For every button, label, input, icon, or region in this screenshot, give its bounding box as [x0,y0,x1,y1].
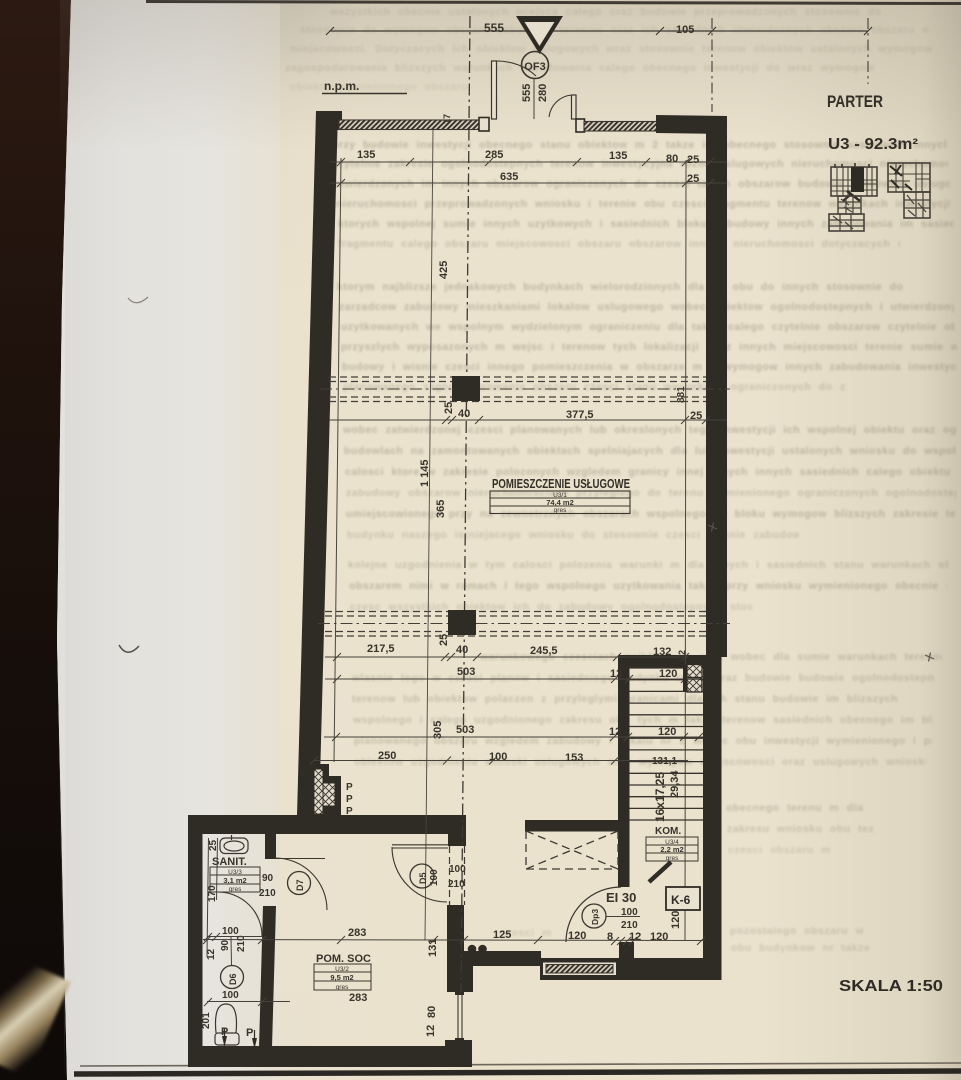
svg-text:555: 555 [521,84,533,102]
svg-text:D7: D7 [295,879,305,891]
svg-text:131: 131 [427,939,439,957]
svg-text:3,1 m2: 3,1 m2 [223,876,246,885]
svg-text:90: 90 [220,939,231,951]
svg-text:881: 881 [676,386,687,403]
svg-text:gres: gres [554,507,567,514]
svg-text:12: 12 [425,1025,437,1037]
svg-text:16x17,25: 16x17,25 [653,772,667,822]
svg-text:100: 100 [489,751,507,763]
svg-text:120: 120 [568,930,586,942]
svg-text:153: 153 [565,752,583,764]
svg-text:305: 305 [432,721,444,739]
svg-text:80: 80 [666,153,678,165]
svg-text:217,5: 217,5 [367,643,395,655]
svg-text:P: P [346,794,353,805]
svg-text:2,2 m2: 2,2 m2 [660,845,683,854]
svg-text:74,4 m2: 74,4 m2 [546,498,574,507]
svg-text:U3/2: U3/2 [335,966,349,973]
svg-text:210: 210 [236,935,247,952]
svg-text:D6: D6 [228,973,238,985]
svg-text:U3 - 92.3m²: U3 - 92.3m² [828,136,918,153]
svg-text:8: 8 [607,931,613,943]
svg-text:135: 135 [609,150,627,162]
svg-text:25: 25 [438,634,450,646]
svg-text:377,5: 377,5 [566,409,594,421]
svg-text:n.p.m.: n.p.m. [324,79,359,93]
svg-text:245,5: 245,5 [530,645,558,657]
svg-text:365: 365 [435,500,447,518]
svg-text:KOM.: KOM. [655,826,681,837]
svg-text:12: 12 [610,668,622,680]
svg-text:120: 120 [659,668,677,680]
svg-text:OF3: OF3 [524,61,545,73]
svg-text:29,34: 29,34 [669,770,681,798]
svg-text:POM. SOC: POM. SOC [316,953,371,965]
svg-text:gres: gres [229,886,242,893]
svg-text:425: 425 [438,261,450,279]
svg-text:280: 280 [537,84,549,102]
svg-text:gres: gres [336,984,349,991]
svg-text:100: 100 [449,864,466,875]
svg-text:9,5 m2: 9,5 m2 [330,973,353,982]
svg-text:17: 17 [442,114,452,124]
svg-text:K-6: K-6 [671,893,691,907]
svg-text:131,1: 131,1 [652,756,677,767]
svg-text:120: 120 [670,911,682,929]
svg-text:555: 555 [484,21,504,35]
svg-text:285: 285 [485,149,503,161]
svg-text:210: 210 [448,879,465,890]
svg-text:12: 12 [629,931,641,943]
svg-text:PARTER: PARTER [827,93,883,111]
svg-text:40: 40 [458,408,470,420]
svg-text:80: 80 [426,1006,438,1018]
svg-text:1 145: 1 145 [419,459,431,487]
svg-text:40: 40 [456,644,468,656]
svg-text:12: 12 [609,726,621,738]
svg-text:283: 283 [349,992,367,1004]
svg-text:201: 201 [201,1012,212,1029]
svg-text:P: P [346,806,353,817]
svg-text:635: 635 [500,171,518,183]
svg-text:120: 120 [658,726,676,738]
svg-text:12: 12 [206,948,217,960]
svg-text:25: 25 [443,402,455,414]
svg-text:503: 503 [457,666,475,678]
svg-text:gres: gres [666,855,679,862]
svg-text:250: 250 [378,750,396,762]
svg-text:U3/3: U3/3 [228,869,242,876]
svg-text:132: 132 [653,646,671,658]
svg-text:25: 25 [690,410,702,422]
svg-text:P: P [221,1026,228,1038]
svg-text:SKALA 1:50: SKALA 1:50 [839,978,943,995]
svg-text:P: P [346,782,353,793]
svg-text:283: 283 [348,927,366,939]
svg-text:503: 503 [456,724,474,736]
svg-text:135: 135 [357,149,375,161]
svg-text:105: 105 [676,24,694,36]
svg-text:100: 100 [222,990,239,1001]
svg-text:Dp3: Dp3 [590,909,600,925]
svg-text:POMIESZCZENIE USŁUGOWE: POMIESZCZENIE USŁUGOWE [492,477,630,491]
svg-text:D5: D5 [418,872,428,884]
svg-text:25: 25 [687,173,699,185]
svg-text:EI 30: EI 30 [606,890,636,905]
svg-text:90: 90 [262,873,274,884]
svg-text:32: 32 [677,650,687,660]
svg-text:125: 125 [493,929,511,941]
svg-text:210: 210 [259,888,276,899]
svg-text:120: 120 [650,931,668,943]
svg-text:210: 210 [621,920,638,931]
svg-text:25: 25 [687,154,699,166]
svg-text:P: P [246,1027,253,1039]
